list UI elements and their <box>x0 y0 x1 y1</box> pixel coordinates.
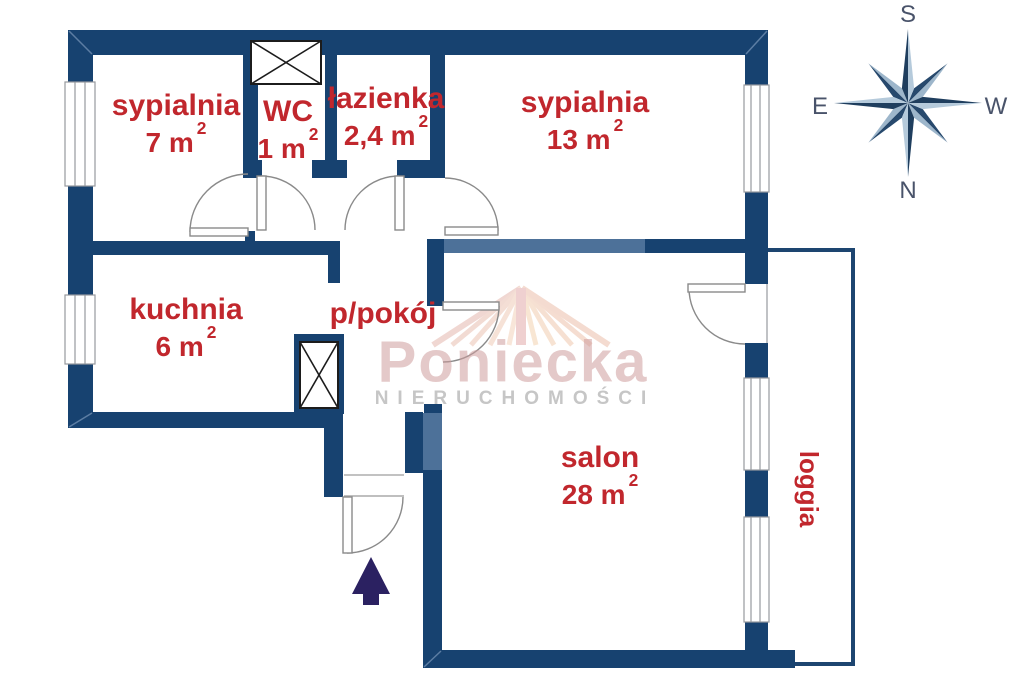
window-salon-upper <box>744 378 769 470</box>
room-name: sypialnia <box>521 88 649 118</box>
room-area: 6 m2 <box>129 332 242 361</box>
room-name: WC <box>258 97 319 127</box>
compass-rose-icon <box>834 29 982 177</box>
room-name: salon <box>561 443 639 473</box>
room-label-salon: salon 28 m2 <box>561 443 639 509</box>
door-bathroom <box>345 176 404 230</box>
room-area: 2,4 m2 <box>328 121 445 150</box>
room-name: kuchnia <box>129 295 242 325</box>
room-name: loggia <box>796 451 822 528</box>
room-area: 28 m2 <box>561 480 639 509</box>
door-wc <box>257 176 315 230</box>
room-label-kuchnia: kuchnia 6 m2 <box>129 295 242 361</box>
compass-letter-n: N <box>899 177 916 205</box>
door-bedroom7 <box>190 174 248 236</box>
compass-letter-w: W <box>985 93 1008 121</box>
room-area: 7 m2 <box>112 128 240 157</box>
window-salon-lower <box>744 517 769 622</box>
watermark-brand: Poniecka <box>378 329 649 396</box>
shaft-hall-icon <box>300 342 338 408</box>
room-name: p/pokój <box>330 299 437 329</box>
room-area: 1 m2 <box>258 134 319 163</box>
door-entrance <box>343 475 404 553</box>
room-label-wc: WC 1 m2 <box>258 97 319 163</box>
door-bedroom13 <box>445 178 498 235</box>
room-label-loggia: loggia <box>796 451 822 528</box>
window-bedroom13 <box>744 85 769 192</box>
watermark-subtitle: NIERUCHOMOŚCI <box>375 388 656 410</box>
floorplan-canvas: Poniecka NIERUCHOMOŚCI sypialnia 7 m2 WC… <box>0 0 1024 683</box>
room-area: 13 m2 <box>521 125 649 154</box>
room-label-sypialnia-13: sypialnia 13 m2 <box>521 88 649 154</box>
room-name: łazienka <box>328 84 445 114</box>
compass-letter-s: S <box>900 1 916 29</box>
window-bedroom7 <box>65 82 95 186</box>
window-kitchen <box>65 295 95 364</box>
compass-letter-e: E <box>812 93 828 121</box>
room-label-lazienka: łazienka 2,4 m2 <box>328 84 445 150</box>
entrance-arrow-icon <box>352 557 390 605</box>
room-name: sypialnia <box>112 91 240 121</box>
room-label-sypialnia-7: sypialnia 7 m2 <box>112 91 240 157</box>
door-balcony <box>688 284 745 344</box>
room-label-przedpokoj: p/pokój <box>330 299 437 329</box>
shaft-top-icon <box>251 41 321 84</box>
